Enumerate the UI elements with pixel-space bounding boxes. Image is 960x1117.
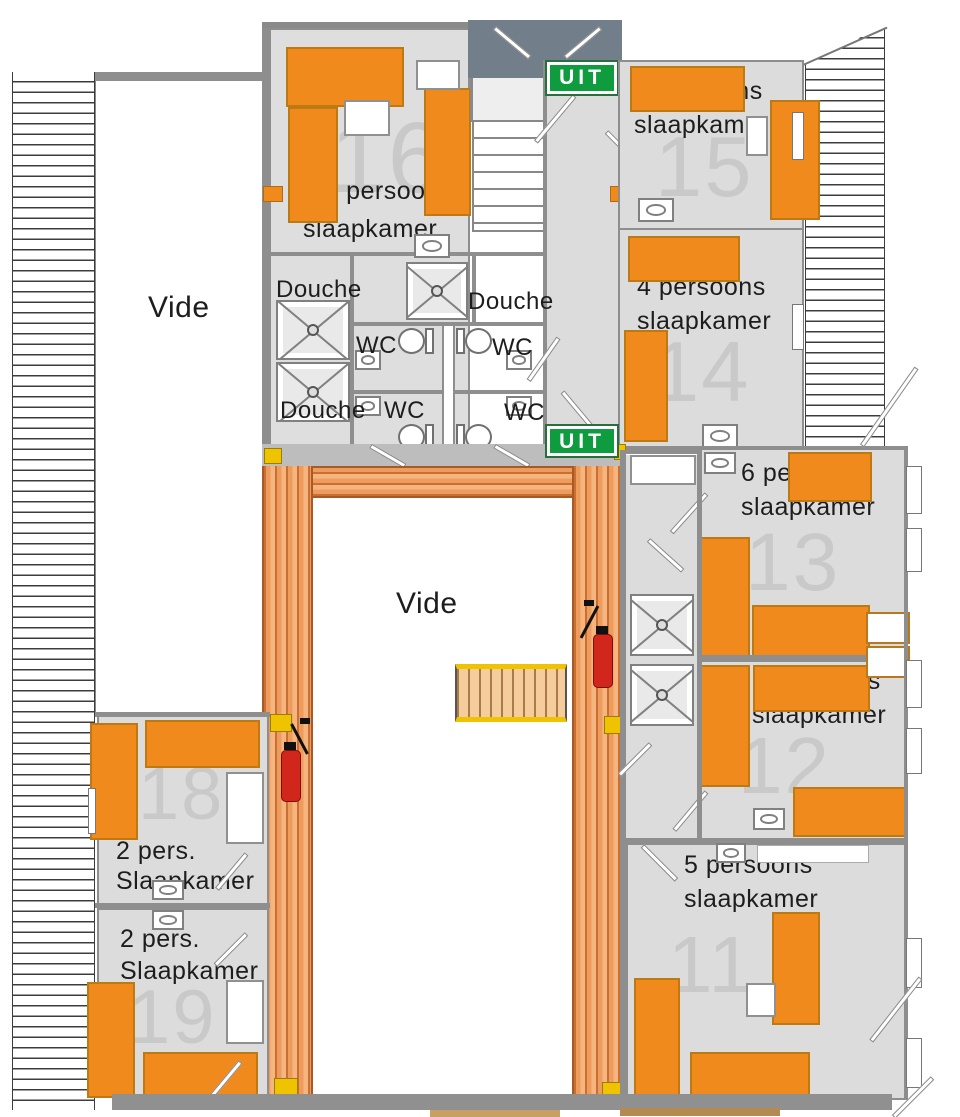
wc-label: WC (384, 397, 425, 426)
douche-label: Douche (468, 288, 554, 317)
vide-center-label: Vide (396, 586, 458, 622)
window (906, 466, 922, 514)
shower-tray-icon (276, 300, 350, 360)
bed (788, 452, 872, 502)
room-number: 18 (138, 757, 224, 831)
room-number: 11 (668, 925, 755, 1005)
exit-sign: UIT (547, 426, 617, 456)
bed (772, 912, 820, 1025)
room-number: 13 (745, 522, 840, 604)
wall (697, 448, 702, 840)
bed (700, 537, 750, 657)
staircase-top (472, 120, 546, 232)
closet (746, 983, 776, 1017)
wall (95, 72, 265, 81)
douche-label: Douche (276, 276, 362, 305)
shower-tray-icon (630, 594, 694, 656)
toilet-icon (456, 328, 492, 354)
douche-label: Douche (280, 397, 366, 426)
window (906, 728, 922, 774)
roof-hatch-top-right (805, 28, 885, 447)
bed (700, 665, 750, 787)
closet (226, 980, 264, 1044)
wc-label: WC (492, 334, 533, 363)
closet (416, 60, 460, 90)
bed (793, 787, 906, 837)
bed (424, 88, 471, 216)
window (906, 1038, 922, 1088)
wall (262, 22, 470, 28)
sink-icon (414, 234, 450, 258)
window (906, 528, 922, 572)
room-label: slaapkamer (684, 884, 818, 914)
shower-tray-icon (630, 664, 694, 726)
closet (630, 455, 696, 485)
walkway-right (572, 466, 622, 1106)
bed (145, 720, 260, 768)
stair-landing (470, 78, 546, 122)
bed (288, 107, 338, 223)
window (792, 112, 804, 160)
bed (630, 66, 745, 112)
bed (634, 978, 680, 1098)
window (792, 304, 804, 350)
room-label: 2 pers. (116, 836, 196, 866)
vide-left-label: Vide (148, 290, 210, 326)
bed (690, 1052, 810, 1098)
wall-connector (263, 186, 283, 202)
bed (143, 1052, 258, 1098)
closet (226, 772, 264, 844)
floor-marker (264, 448, 282, 464)
sink-icon (702, 424, 738, 448)
exit-sign: UIT (547, 62, 617, 94)
fire-extinguisher-icon (596, 626, 608, 634)
wc-label: WC (504, 399, 545, 428)
threshold (620, 1108, 780, 1116)
staircase-main (455, 664, 567, 722)
fire-extinguisher-icon (281, 750, 301, 802)
closet (746, 116, 768, 156)
fire-extinguisher-icon (584, 600, 594, 606)
room-number: 19 (128, 980, 217, 1056)
bed (624, 330, 668, 442)
fire-extinguisher-icon (284, 742, 296, 750)
closet (344, 100, 390, 136)
floor-marker (270, 714, 292, 732)
sink-icon (152, 910, 184, 930)
wc-label: WC (356, 332, 397, 361)
floor-plan: Vide 16 2-5 persoons slaapkamer UIT 15 2… (0, 0, 960, 1117)
walkway-top (262, 466, 622, 498)
sink-icon (638, 198, 674, 222)
window (906, 660, 922, 708)
window (88, 788, 96, 834)
shaft (442, 324, 455, 458)
roof-hatch-left (12, 72, 95, 1110)
bed (752, 605, 870, 657)
toilet-icon (398, 328, 434, 354)
wall (543, 60, 547, 455)
table (757, 845, 869, 863)
bed (628, 236, 740, 282)
bed (90, 723, 138, 840)
threshold (430, 1110, 560, 1117)
sink-icon (704, 452, 736, 474)
wall (262, 252, 545, 256)
shower-tray-icon (406, 262, 468, 320)
sink-icon (753, 808, 785, 830)
bed (753, 665, 870, 712)
fire-extinguisher-icon (593, 634, 613, 688)
vide-left-area (95, 80, 262, 712)
sink-icon (716, 843, 746, 863)
bed (286, 47, 404, 107)
bed (87, 982, 135, 1098)
sink-icon (152, 880, 184, 900)
fire-extinguisher-icon (300, 718, 310, 724)
